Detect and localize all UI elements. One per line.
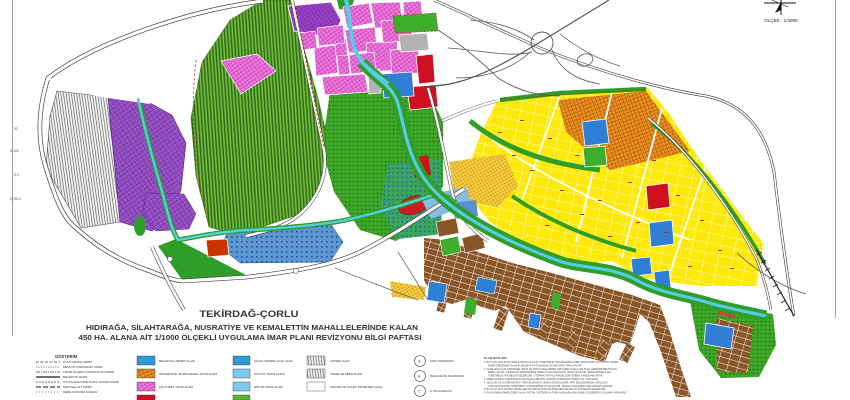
svg-text:ÜNİVERSİTE VE BÖLGESEL SPOR AL: ÜNİVERSİTE VE BÖLGESEL SPOR ALANI xyxy=(159,371,217,376)
svg-text:ÇORLU: ÇORLU xyxy=(10,197,22,201)
svg-text:KÜLTÜREL TESİS ALANI: KÜLTÜREL TESİS ALANI xyxy=(159,384,193,389)
svg-text:4. JEOLOJİK VE JEOTEKNİK ETÜT: 4. JEOLOJİK VE JEOTEKNİK ETÜT RAPORLARIN… xyxy=(484,381,608,384)
svg-text:EMSAL VE KAT YÜKSEKLİĞİ DEĞERL: EMSAL VE KAT YÜKSEKLİĞİ DEĞERLERİNE GÖRE… xyxy=(488,371,611,374)
svg-text:1. BU PLAN, 3194 SAYILI İMAR K: 1. BU PLAN, 3194 SAYILI İMAR KANUNU VE İ… xyxy=(484,361,619,364)
svg-text:GÖSTERİM: GÖSTERİM xyxy=(55,354,78,359)
svg-text:TARIM VE SERA ALANI: TARIM VE SERA ALANI xyxy=(330,372,362,376)
svg-text:PLAN ONAMA SINIRI: PLAN ONAMA SINIRI xyxy=(63,360,92,364)
svg-text:DERE KORUMA KUŞAĞI: DERE KORUMA KUŞAĞI xyxy=(63,389,98,394)
svg-text:ASKI NUMARASI: ASKI NUMARASI xyxy=(430,359,454,363)
svg-text:1/5000 ÖLÇEKLİ NAZIM PLAN SINI: 1/5000 ÖLÇEKLİ NAZIM PLAN SINIRI xyxy=(63,369,114,374)
svg-text:YAPILAR HAKKINDA YÖNETMELİK HÜ: YAPILAR HAKKINDA YÖNETMELİK HÜKÜMLERİNE … xyxy=(488,385,613,388)
svg-text:BELEDİYE HİZMET ALANI: BELEDİYE HİZMET ALANI xyxy=(159,358,195,363)
svg-text:KENTSEL SİT SINIRI: KENTSEL SİT SINIRI xyxy=(63,384,92,389)
svg-text:3. DERE KORUMA KUŞAĞINDA KALAN: 3. DERE KORUMA KUŞAĞINDA KALAN ALANLARDA… xyxy=(484,378,599,381)
svg-text:İMAR ADASI NUMARASI: İMAR ADASI NUMARASI xyxy=(430,373,464,378)
svg-text:D-100: D-100 xyxy=(10,149,19,153)
svg-text:ÖLÇEK : 1/4000: ÖLÇEK : 1/4000 xyxy=(764,17,798,23)
svg-text:ASKERİ ALAN: ASKERİ ALAN xyxy=(330,358,350,363)
svg-text:UYGULAMA İMAR PLANI ONAMA SINI: UYGULAMA İMAR PLANI ONAMA SINIRI xyxy=(63,379,119,384)
svg-text:E-5: E-5 xyxy=(14,173,19,177)
svg-text:YÖNETMELİK HÜKÜMLERİ GEÇERLİDİ: YÖNETMELİK HÜKÜMLERİ GEÇERLİDİR. OTOPARK… xyxy=(488,375,604,378)
svg-text:PLAN NOTLARI:: PLAN NOTLARI: xyxy=(484,356,507,360)
svg-text:HIDIRAĞA, SİLAHTARAĞA, NUSRATİ: HIDIRAĞA, SİLAHTARAĞA, NUSRATİYE VE KEMA… xyxy=(86,323,418,332)
svg-text:450 HA. ALANA AİT 1/1000 ÖLÇEK: 450 HA. ALANA AİT 1/1000 ÖLÇEKLİ UYGULAM… xyxy=(79,333,422,342)
svg-text:2. PLANLAMA ALANI İÇERİSİNDE Y: 2. PLANLAMA ALANI İÇERİSİNDE YER ALAN KO… xyxy=(484,368,617,371)
svg-text:UYGULAMA NO: UYGULAMA NO xyxy=(430,389,453,393)
svg-text:SINIRI İÇERİSİNDE KALAN ALANLA: SINIRI İÇERİSİNDE KALAN ALANLARDA UYGULA… xyxy=(488,364,583,367)
svg-text:ARITMA VE TRAFO TESİSLERİ ALAN: ARITMA VE TRAFO TESİSLERİ ALANI xyxy=(330,384,383,389)
svg-text:6. PLAN ONAMA SINIRI İÇİNDE KA: 6. PLAN ONAMA SINIRI İÇİNDE KALAN SOSYAL… xyxy=(484,392,627,395)
svg-text:EĞİTİM TESİS ALANI: EĞİTİM TESİS ALANI xyxy=(254,384,283,389)
svg-text:5. BU PLAN VE PLAN NOTLARINDA: 5. BU PLAN VE PLAN NOTLARINDA BELİRTİLME… xyxy=(484,388,606,391)
svg-text:30: 30 xyxy=(14,127,18,131)
svg-text:SOSYAL TESİS ALANI: SOSYAL TESİS ALANI xyxy=(254,371,285,376)
svg-text:TEKİRDAĞ-ÇORLU: TEKİRDAĞ-ÇORLU xyxy=(200,308,299,319)
svg-text:AĞAÇLANDIRILACAK ALAN: AĞAÇLANDIRILACAK ALAN xyxy=(254,358,293,363)
svg-text:BELEDİYE SINIRI: BELEDİYE SINIRI xyxy=(63,374,88,379)
svg-text:MEVCUT KADASTRO SINIRI: MEVCUT KADASTRO SINIRI xyxy=(63,365,103,369)
